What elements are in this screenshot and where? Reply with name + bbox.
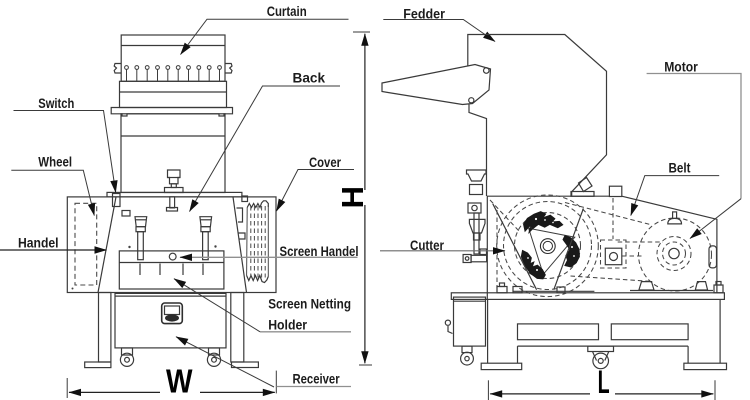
- svg-text:Fedder: Fedder: [403, 5, 445, 21]
- svg-text:Back: Back: [293, 70, 326, 86]
- svg-text:Switch: Switch: [38, 95, 74, 111]
- svg-text:Wheel: Wheel: [38, 154, 72, 170]
- svg-text:Curtain: Curtain: [267, 3, 307, 19]
- svg-text:Screen Netting: Screen Netting: [268, 296, 351, 312]
- svg-text:W: W: [166, 363, 193, 400]
- svg-text:Screen Handel: Screen Handel: [280, 243, 359, 259]
- svg-text:L: L: [598, 364, 610, 400]
- svg-text:Belt: Belt: [669, 160, 691, 176]
- svg-text:Cover: Cover: [309, 154, 341, 170]
- svg-text:Receiver: Receiver: [293, 371, 341, 387]
- svg-text:H: H: [335, 186, 370, 209]
- svg-text:Handel: Handel: [18, 235, 59, 251]
- svg-text:Motor: Motor: [664, 58, 698, 74]
- svg-text:Holder: Holder: [268, 317, 307, 333]
